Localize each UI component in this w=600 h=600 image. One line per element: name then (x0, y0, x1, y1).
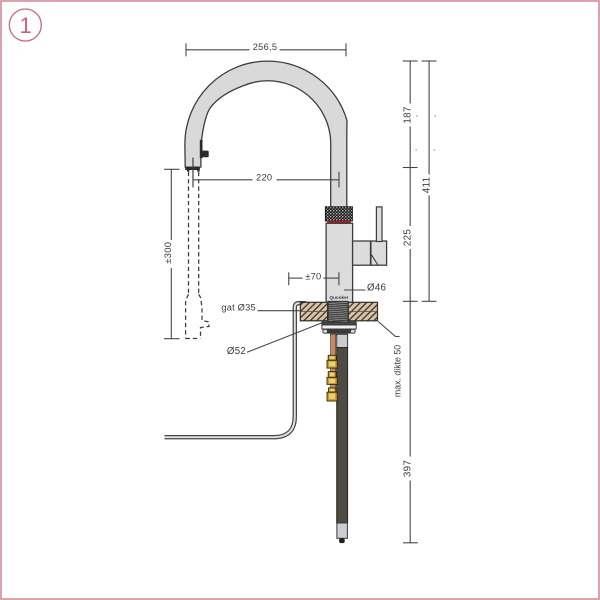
svg-text:225: 225 (403, 229, 414, 246)
svg-text:1: 1 (19, 13, 31, 38)
svg-text:max. dikte 50: max. dikte 50 (392, 345, 402, 397)
svg-text:397: 397 (403, 460, 414, 477)
svg-text:gat Ø35: gat Ø35 (221, 302, 255, 312)
svg-text:220: 220 (256, 172, 272, 182)
svg-text:256,5: 256,5 (253, 42, 278, 52)
svg-text:Ø52: Ø52 (227, 346, 246, 357)
svg-text:±70: ±70 (305, 272, 321, 282)
svg-text:411: 411 (421, 177, 432, 194)
svg-text:±300: ±300 (162, 242, 173, 264)
svg-text:Ø46: Ø46 (367, 283, 386, 294)
svg-text:Quooker: Quooker (330, 295, 349, 300)
svg-text:187: 187 (403, 106, 414, 123)
